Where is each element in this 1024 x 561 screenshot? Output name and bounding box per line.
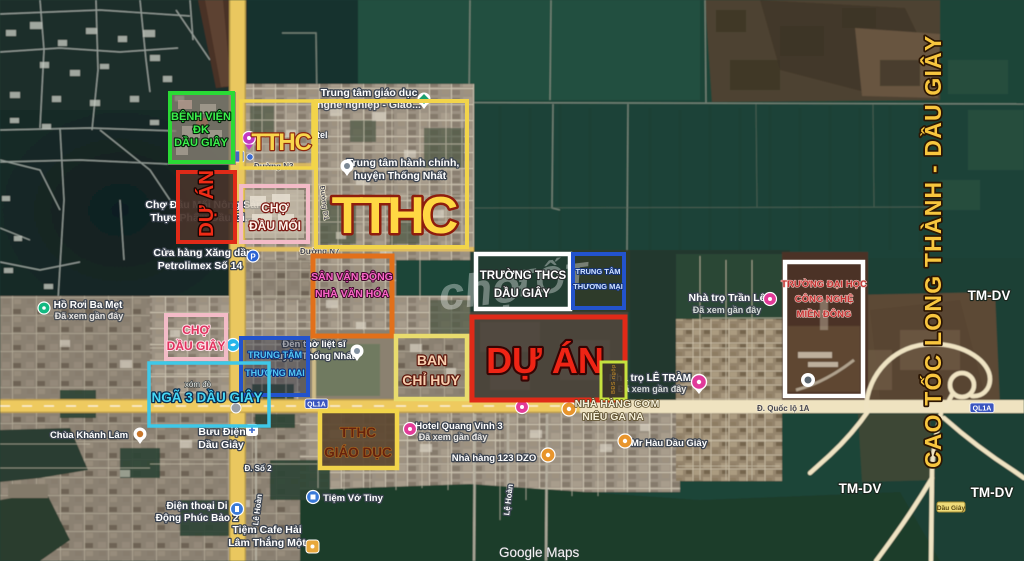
svg-text:MIỀN ĐÔNG: MIỀN ĐÔNG [797,308,852,320]
svg-text:ĐẦU MỐI: ĐẦU MỐI [249,218,301,233]
svg-text:NHÀ HÀNG CƠM: NHÀ HÀNG CƠM [575,397,660,410]
svg-text:THƯƠNG MẠI: THƯƠNG MẠI [573,282,623,291]
svg-text:Đã xem gần đây: Đã xem gần đây [618,384,687,394]
svg-text:CHỢ: CHỢ [261,201,289,215]
svg-text:CHỢ: CHỢ [182,323,210,337]
svg-text:GIÁO DỤC: GIÁO DỤC [324,445,392,460]
svg-text:Mr Hàu Dầu Giây: Mr Hàu Dầu Giây [631,438,708,449]
svg-text:BAN: BAN [417,352,447,368]
svg-text:TM-DV: TM-DV [839,481,882,496]
svg-text:NIÊU GA NA: NIÊU GA NA [582,410,644,423]
svg-text:Động Phúc Bảo 2: Động Phúc Bảo 2 [156,513,239,524]
svg-text:TTHC: TTHC [251,129,311,156]
svg-text:Đ. Số 2: Đ. Số 2 [244,464,272,473]
svg-text:ĐK: ĐK [193,124,209,136]
svg-text:Hồ Rơi Ba Mẹt: Hồ Rơi Ba Mẹt [54,299,123,311]
svg-text:TM-DV: TM-DV [968,288,1011,303]
svg-text:DẦU GIÂY: DẦU GIÂY [167,338,226,353]
svg-text:NGÃ 3 DẦU GIÂY: NGÃ 3 DẦU GIÂY [151,390,262,405]
svg-text:Trung tâm giáo dục: Trung tâm giáo dục [321,87,418,99]
svg-text:TRƯỜNG ĐẠI HỌC: TRƯỜNG ĐẠI HỌC [781,278,867,290]
svg-text:P: P [250,253,256,262]
svg-text:TTHC: TTHC [340,425,376,440]
svg-text:xóm đò: xóm đò [185,380,212,389]
svg-text:BĐS ngộp: BĐS ngộp [611,364,617,394]
svg-text:NHÀ VĂN HÓA: NHÀ VĂN HÓA [315,287,390,300]
svg-text:huyện Thống Nhất: huyện Thống Nhất [354,170,447,182]
svg-text:TRƯỜNG THCS: TRƯỜNG THCS [480,269,567,282]
svg-text:DỰ ÁN: DỰ ÁN [486,340,604,381]
svg-text:Cửa hàng Xăng dầu: Cửa hàng Xăng dầu [153,247,252,259]
svg-text:Petrolimex Số 14: Petrolimex Số 14 [158,260,243,272]
svg-text:tel: tel [317,130,328,140]
svg-text:Chùa Khánh Lâm: Chùa Khánh Lâm [50,430,128,441]
svg-text:SÂN VẬN ĐỘNG: SÂN VẬN ĐỘNG [311,270,393,283]
svg-text:CHỈ HUY: CHỈ HUY [402,372,460,388]
svg-text:Đã xem gần đây: Đã xem gần đây [693,305,762,315]
svg-text:Nhà trọ Trần Lê: Nhà trọ Trần Lê [688,292,765,304]
svg-text:Tiệm Vớ Tiny: Tiệm Vớ Tiny [323,493,383,504]
svg-text:QL1A: QL1A [973,406,992,413]
svg-text:TTHC: TTHC [332,187,458,245]
svg-text:Nhà hàng 123 DZO: Nhà hàng 123 DZO [452,453,536,464]
svg-text:Bưu Điện: Bưu Điện [198,426,245,438]
svg-text:Đã xem gần đây: Đã xem gần đây [419,432,488,442]
svg-text:Dầu Giây: Dầu Giây [937,503,966,512]
svg-text:DỰ ÁN: DỰ ÁN [195,170,218,237]
svg-text:BỆNH VIỆN: BỆNH VIỆN [171,110,231,123]
svg-text:Điện thoại Di: Điện thoại Di [166,501,227,512]
svg-text:Lâm Thắng Một: Lâm Thắng Một [228,536,306,549]
svg-text:Đ. Quốc lộ 1A: Đ. Quốc lộ 1A [757,404,810,413]
svg-text:DẦU GIÂY: DẦU GIÂY [494,287,551,300]
svg-text:TM-DV: TM-DV [971,485,1014,500]
svg-text:Hotel Quang Vinh 3: Hotel Quang Vinh 3 [415,421,502,432]
svg-text:QL1A: QL1A [307,402,326,409]
svg-text:CAO TỐC LONG THÀNH - DẦU GIÂY: CAO TỐC LONG THÀNH - DẦU GIÂY [919,35,946,468]
svg-text:DẦU GIÂY: DẦU GIÂY [174,136,228,149]
svg-text:Trung tâm hành chính,: Trung tâm hành chính, [347,157,460,169]
svg-text:Đã xem gần đây: Đã xem gần đây [55,311,124,321]
svg-text:TRUNG TÂM: TRUNG TÂM [576,267,621,276]
svg-text:Tiệm Cafe Hải: Tiệm Cafe Hải [232,524,301,536]
svg-text:CÔNG NGHỆ: CÔNG NGHỆ [795,293,854,305]
svg-text:Google Maps: Google Maps [499,545,580,560]
svg-text:THƯƠNG MẠI: THƯƠNG MẠI [245,368,305,378]
svg-text:TRUNG TÂM: TRUNG TÂM [248,349,302,360]
svg-text:Dầu Giây: Dầu Giây [198,439,244,451]
